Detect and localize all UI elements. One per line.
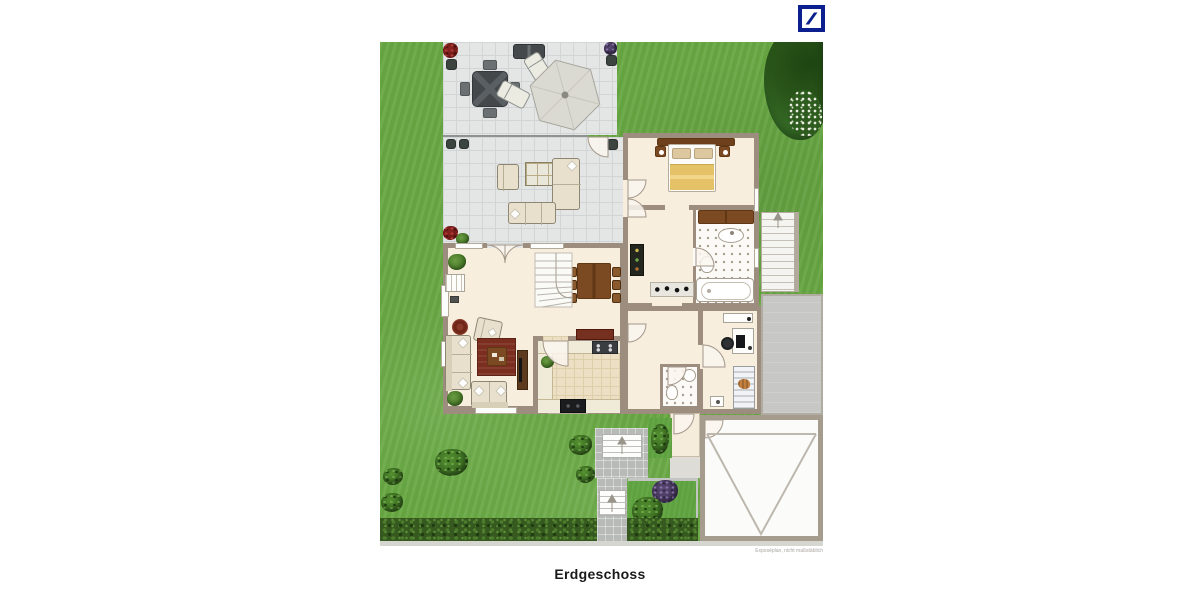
deutsche-bank-logo (798, 5, 825, 32)
wc-sink (683, 369, 696, 382)
toilet (700, 256, 714, 273)
window (754, 248, 759, 268)
planter-pot (607, 139, 618, 150)
dining-chair (568, 280, 577, 290)
bathtub (696, 278, 754, 302)
coffee-table (487, 347, 507, 366)
dining-chair (612, 280, 621, 290)
office-chair (721, 337, 734, 350)
dining-chair (612, 293, 621, 303)
dining-chair (568, 267, 577, 277)
office-wall (698, 311, 703, 345)
dining-chair (568, 293, 577, 303)
dresser (698, 210, 754, 224)
hedge (380, 518, 597, 541)
patio-chair (483, 60, 497, 70)
planter-pot (446, 139, 456, 149)
outdoor-armchair (497, 164, 519, 190)
dining-table (577, 263, 611, 299)
retaining-wall (795, 212, 799, 292)
door-opening (693, 248, 696, 266)
wc-toilet (666, 385, 678, 400)
door-opening (665, 205, 689, 210)
entrance-walk (670, 457, 702, 478)
dining-chair (612, 267, 621, 277)
patio-chair (483, 108, 497, 118)
side-table (710, 396, 724, 407)
shelf-bench (445, 274, 465, 292)
watermark-text: Exposéplan, nicht maßstäblich (623, 548, 823, 554)
planter-pot (606, 55, 617, 66)
window (530, 243, 564, 249)
garden-steps (599, 490, 626, 516)
outdoor-sofa (552, 158, 580, 210)
terrace-lower (443, 137, 623, 245)
bed (668, 144, 716, 192)
entrance-platform (670, 413, 700, 457)
patio-table (472, 71, 508, 107)
daybed (733, 366, 755, 409)
window (455, 243, 483, 249)
pillow (672, 148, 691, 159)
floorplan (380, 42, 823, 546)
floorplan-caption: Erdgeschoss (0, 566, 1200, 582)
sideboard-white (723, 313, 753, 323)
pillow (694, 148, 713, 159)
patio-chair (460, 82, 470, 96)
tv (519, 358, 522, 382)
utility-counter (650, 282, 694, 297)
loveseat (471, 381, 507, 407)
sofa (445, 335, 471, 390)
blanket (670, 164, 714, 190)
planter-pot (446, 59, 457, 70)
nightstand (719, 146, 730, 157)
patio-chair (510, 82, 520, 96)
window (475, 407, 517, 414)
sidewalk (380, 541, 823, 546)
hedge (627, 518, 698, 541)
kitchen-appliance (560, 399, 586, 413)
sideboard-red (576, 329, 614, 340)
exterior-stairs (761, 212, 795, 292)
desk (732, 328, 754, 354)
door-opening (623, 180, 628, 217)
round-rug (452, 319, 468, 335)
planter-pot (459, 139, 469, 149)
stereo-unit (450, 296, 459, 303)
driveway (761, 294, 823, 415)
utility-cabinet (630, 244, 644, 276)
garage (700, 415, 823, 541)
outdoor-sofa (508, 202, 556, 224)
db-slash-icon (802, 9, 821, 28)
door-opening (487, 243, 523, 248)
sink (718, 228, 744, 243)
window (754, 188, 759, 212)
cat (738, 379, 750, 389)
tv-board (517, 350, 528, 390)
cooktop (592, 341, 618, 354)
grill (513, 44, 545, 59)
nightstand (655, 146, 666, 157)
garden-steps (602, 434, 642, 458)
laptop (736, 335, 745, 348)
